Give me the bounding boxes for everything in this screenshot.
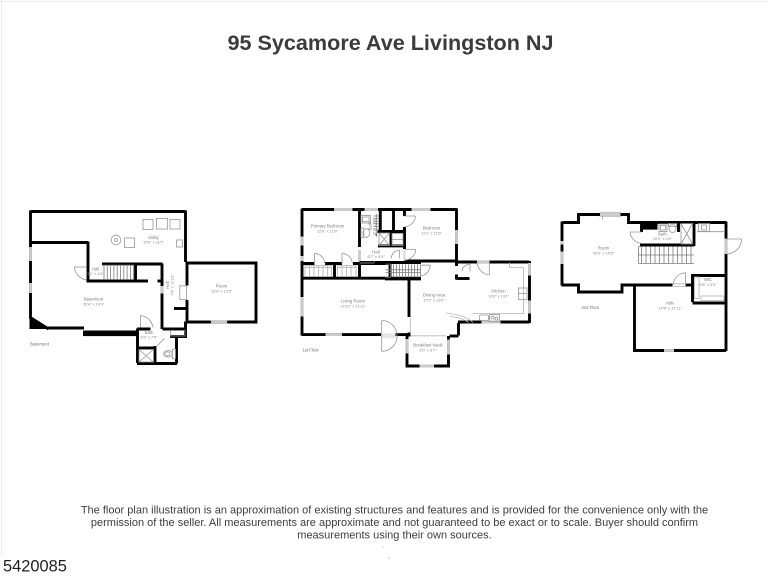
svg-text:8'0" x 9'7": 8'0" x 9'7" bbox=[419, 347, 437, 352]
svg-text:13'8" x 13'1": 13'8" x 13'1" bbox=[488, 293, 510, 298]
svg-text:The floor plan illustration is: The floor plan illustration is an approx… bbox=[81, 505, 708, 517]
svg-text:8'3" x 7'5": 8'3" x 7'5" bbox=[140, 334, 158, 339]
svg-text:22'10" x 11'11": 22'10" x 11'11" bbox=[340, 303, 366, 308]
svg-text:3'1" x 3'4": 3'1" x 3'4" bbox=[87, 271, 105, 276]
svg-text:permission of the seller. All: permission of the seller. All measuremen… bbox=[91, 517, 698, 529]
svg-text:10'2" x 13'0": 10'2" x 13'0" bbox=[423, 297, 445, 302]
svg-text:1st Floor: 1st Floor bbox=[303, 348, 320, 353]
svg-text:5420085: 5420085 bbox=[3, 558, 67, 576]
svg-text:2nd Floor: 2nd Floor bbox=[582, 305, 600, 310]
svg-text:6'1" x 6'5": 6'1" x 6'5" bbox=[371, 217, 376, 235]
svg-text:26'4" x 19'4": 26'4" x 19'4" bbox=[83, 301, 105, 306]
svg-text:33'0" x 15'8": 33'0" x 15'8" bbox=[593, 250, 615, 255]
svg-text:4'6" x 11'10": 4'6" x 11'10" bbox=[170, 274, 175, 296]
svg-text:11'1" x 11'6": 11'1" x 11'6" bbox=[421, 230, 442, 235]
svg-text:95 Sycamore Ave Livingston NJ: 95 Sycamore Ave Livingston NJ bbox=[227, 30, 553, 55]
svg-text:6'8" x 5'5": 6'8" x 5'5" bbox=[699, 282, 717, 287]
svg-text:15'8" x 11'5": 15'8" x 11'5" bbox=[143, 239, 165, 244]
svg-text:6'7" x 4'9": 6'7" x 4'9" bbox=[367, 254, 385, 259]
svg-text:12'6" x 11'8": 12'6" x 11'8" bbox=[317, 228, 339, 233]
svg-text:Basement: Basement bbox=[30, 342, 50, 347]
svg-text:15'4" x 12'5": 15'4" x 12'5" bbox=[211, 288, 233, 293]
svg-text:14'8" x 12'11": 14'8" x 12'11" bbox=[658, 305, 682, 310]
svg-text:measurements using their own s: measurements using their own sources. bbox=[297, 530, 491, 542]
svg-text:10'0" x 4'5": 10'0" x 4'5" bbox=[653, 236, 673, 241]
